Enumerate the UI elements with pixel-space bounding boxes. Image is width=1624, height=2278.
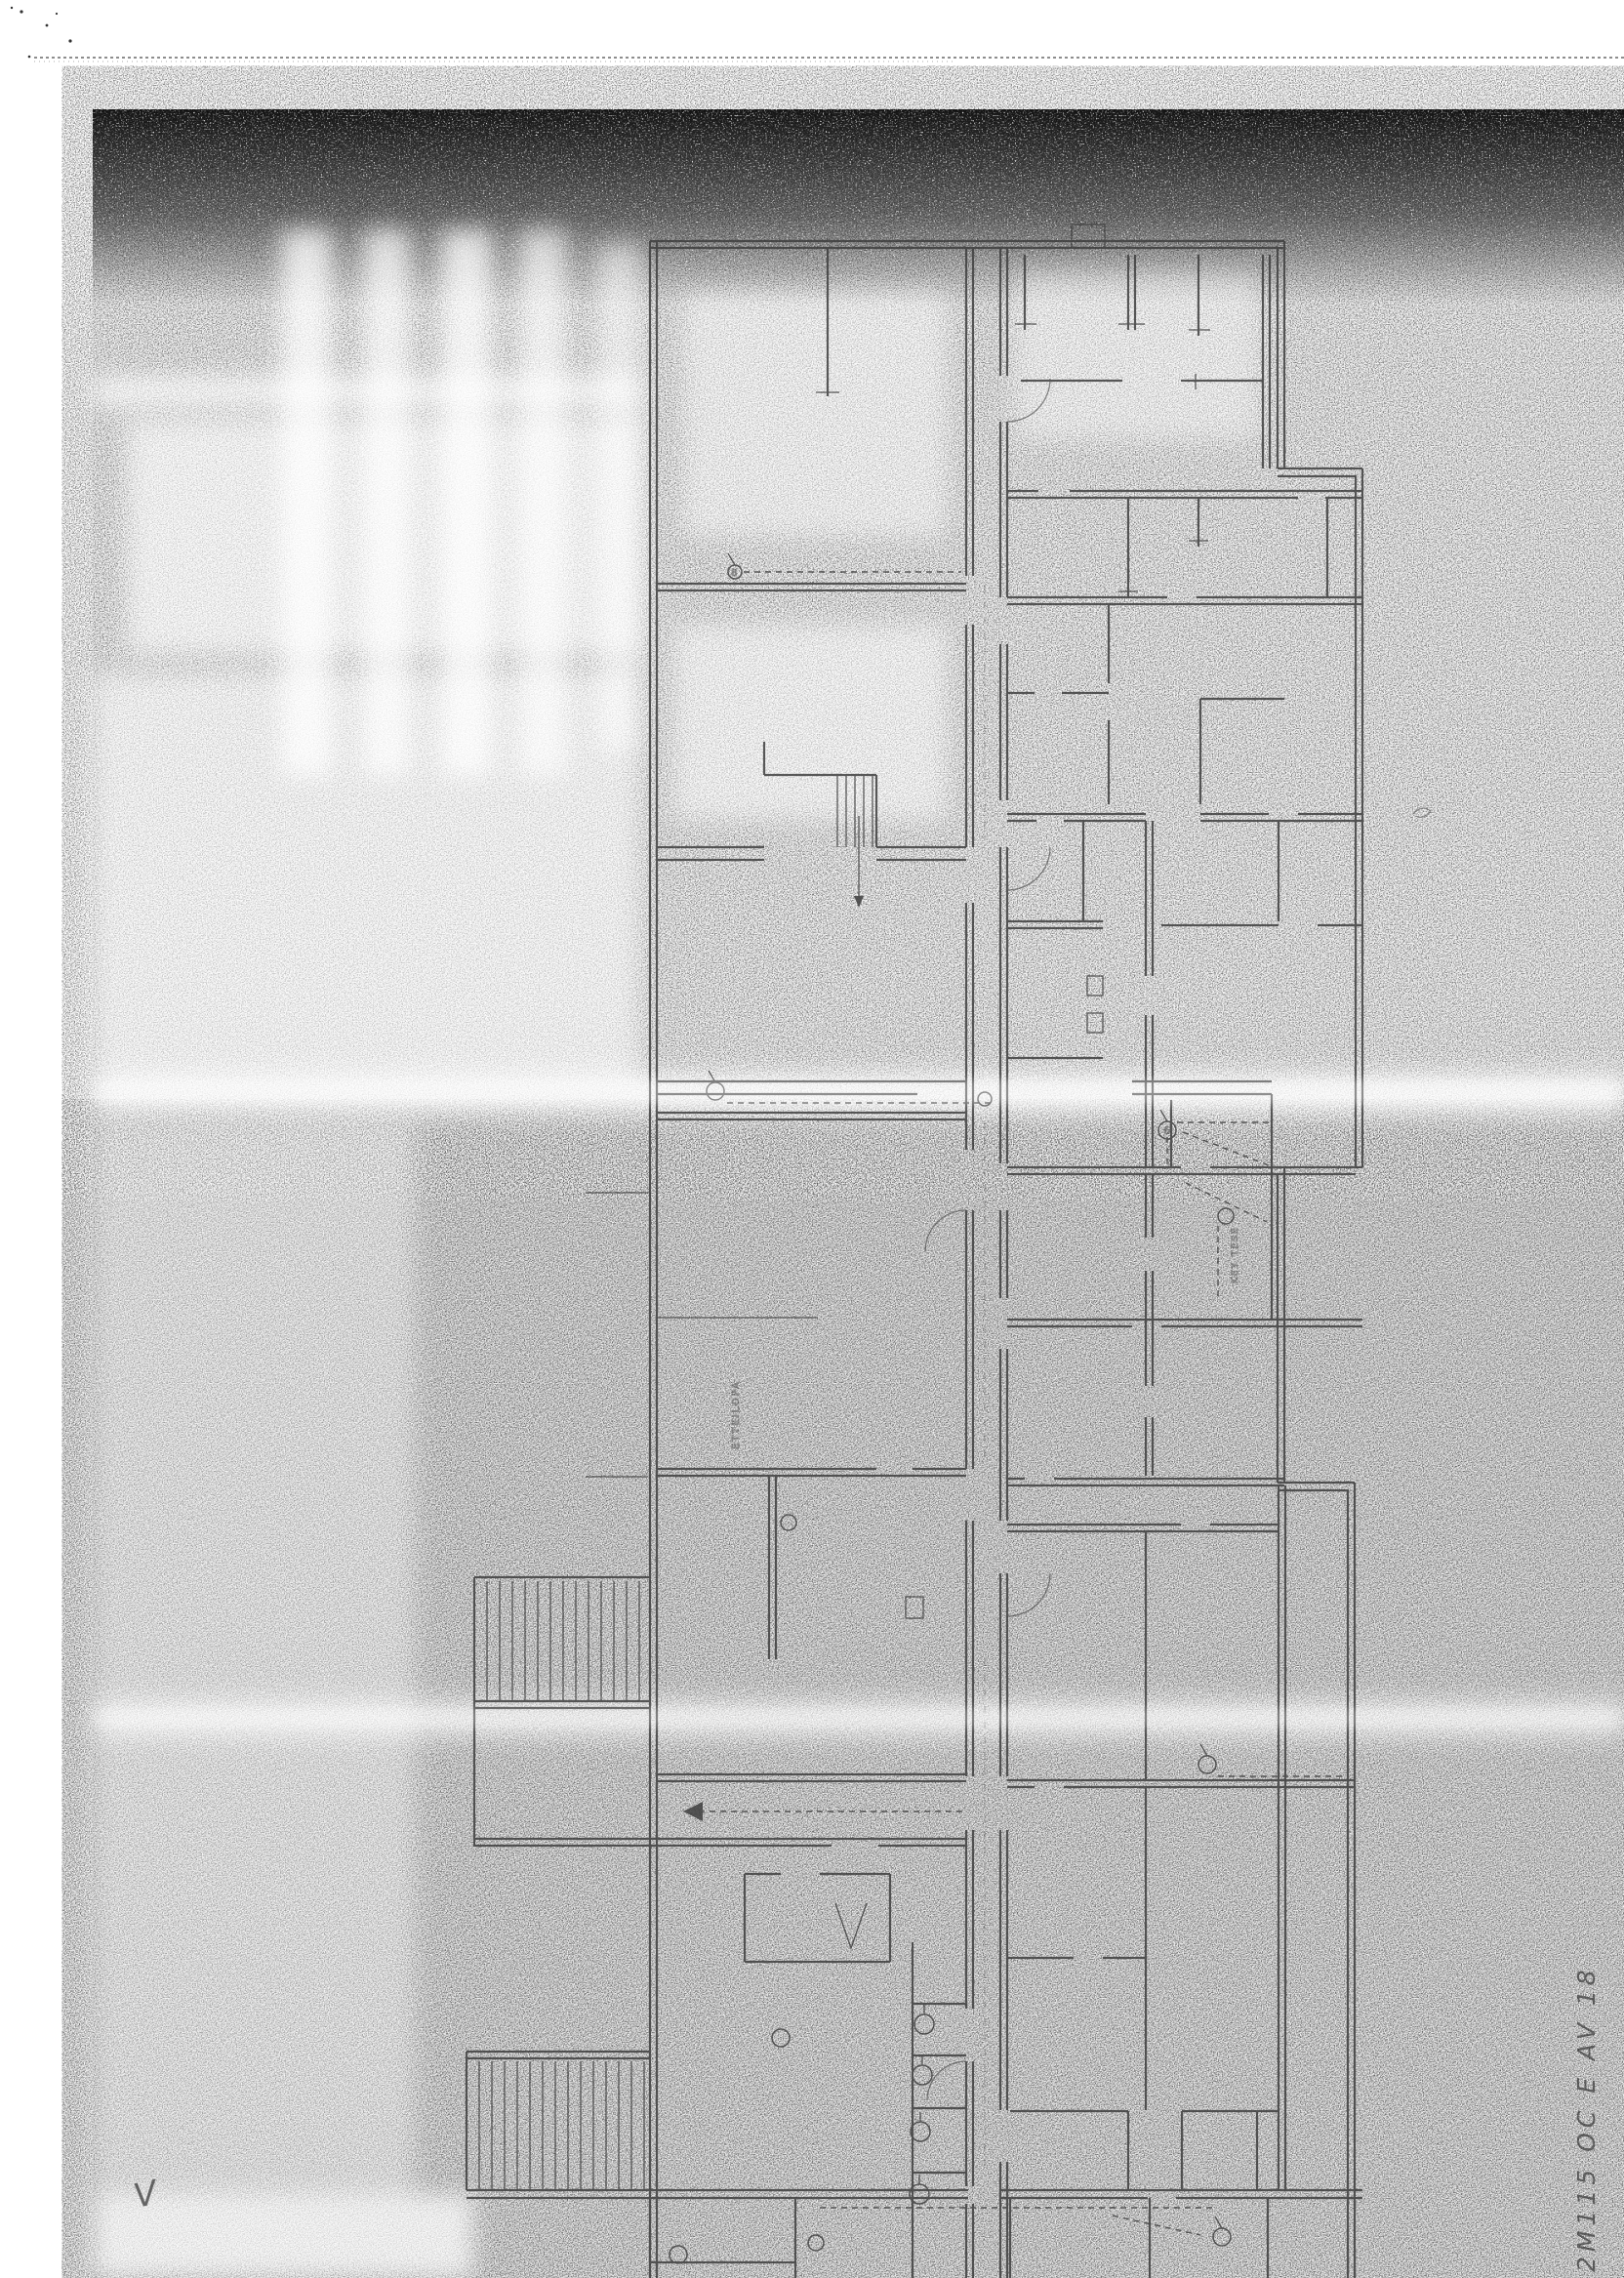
symbol-tag-8: 8 — [731, 568, 737, 579]
symbol-tag-6: 6 — [1163, 1124, 1170, 1137]
handwritten-note: 2M115 OC E AV 18 — [1572, 1965, 1601, 2272]
scan-canvas: ETTEILOPA KEY TESE 6 8 2M115 OC E AV 18 … — [0, 0, 1624, 2278]
scanned-floorplan-page: ETTEILOPA KEY TESE 6 8 2M115 OC E AV 18 … — [0, 0, 1624, 2278]
faint-area-label: KEY TESE — [1231, 1226, 1240, 1283]
faint-room-label: ETTEILOPA — [731, 1380, 742, 1449]
